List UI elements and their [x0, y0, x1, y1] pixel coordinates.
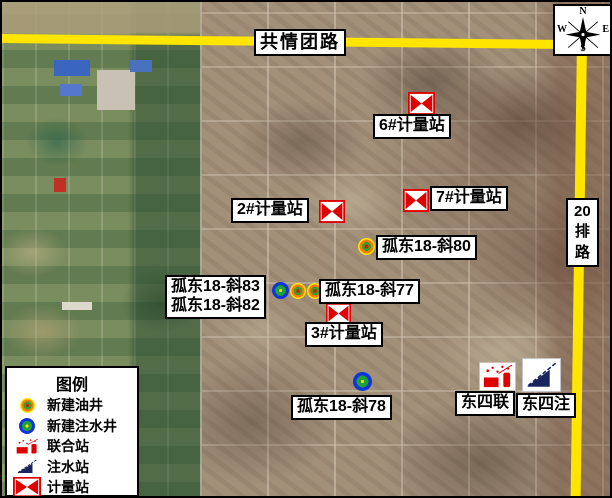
legend-icon-cell [7, 457, 47, 476]
legend-item-label: 计量站 [47, 477, 89, 497]
metering-station-2-icon [319, 200, 345, 223]
injection-well-icon [353, 372, 372, 391]
label-injection-well-gudong18-x78-text: 孤东18-斜78 [297, 398, 386, 417]
road-label-20pai-text: 排 [574, 222, 591, 242]
road-label-gongqingtuan-text: 共情团路 [260, 32, 340, 53]
injection-station-dongsizhu-icon [522, 358, 561, 392]
injection-well-icon [272, 282, 289, 299]
label-oil-well-gudong18-x80: 孤东18-斜80 [376, 235, 477, 260]
label-metering-station-6: 6#计量站 [373, 114, 451, 139]
legend-title: 图例 [7, 371, 137, 395]
metering-station-icon [326, 303, 351, 324]
farm-building-blue-1 [54, 60, 90, 76]
oil-well-cluster-a-icon [290, 283, 306, 299]
oil-well-gudong18-x80-icon [358, 238, 375, 255]
metering-station-7-icon [403, 189, 429, 212]
legend-icon-cell [7, 437, 47, 456]
legend-item-label: 新建注水井 [47, 416, 117, 436]
label-dongsizhu-text: 东四注 [522, 396, 570, 415]
label-metering-station-3-text: 3#计量站 [311, 325, 377, 344]
farm-building-blue-3 [130, 60, 152, 72]
label-oil-well-gudong18-x77: 孤东18-斜77 [319, 279, 420, 304]
legend-icon-cell [7, 477, 47, 497]
label-oil-well-gudong18-x77-text: 孤东18-斜77 [325, 282, 414, 301]
farm-building-gray [97, 70, 135, 110]
road-label-20pai-text: 路 [574, 243, 591, 263]
label-wells-gudong18-x83-x82-text: 孤东18-斜83 [171, 278, 260, 297]
farm-building-blue-2 [60, 84, 82, 96]
road-label-20pai-text: 20 [574, 202, 591, 222]
compass-east-label: E [602, 24, 609, 35]
metering-station-icon [403, 189, 429, 212]
legend-icon-cell [7, 398, 47, 413]
farm-building-white [62, 302, 92, 310]
metering-station-icon [13, 477, 41, 497]
injection-station-icon [14, 457, 40, 476]
satellite-map: 共情团路6#计量站2#计量站7#计量站孤东18-斜80孤东18-斜83孤东18-… [0, 0, 612, 498]
label-metering-station-7-text: 7#计量站 [436, 189, 502, 208]
injection-well-cluster-icon [272, 282, 289, 299]
union-station-dongsilian-icon [479, 362, 516, 391]
road-label-20pai: 20排路 [566, 198, 599, 267]
label-metering-station-2-text: 2#计量站 [237, 201, 303, 220]
oil-well-icon [358, 238, 375, 255]
legend-icon-cell [7, 418, 47, 434]
oil-well-icon [290, 283, 306, 299]
injection-station-icon [522, 358, 561, 392]
compass-south-label: S [580, 43, 586, 54]
label-metering-station-7: 7#计量站 [430, 186, 508, 211]
legend-item-oil-well: 新建油井 [7, 395, 137, 416]
label-dongsilian-text: 东四联 [461, 394, 509, 413]
label-wells-gudong18-x83-x82: 孤东18-斜83孤东18-斜82 [165, 275, 266, 319]
union-station-icon [13, 437, 41, 456]
legend-item-union-station: 联合站 [7, 436, 137, 457]
compass-north-label: N [579, 6, 586, 17]
compass-rose: N S W E [553, 4, 612, 56]
label-dongsilian: 东四联 [455, 391, 515, 416]
legend-item-metering-station: 计量站 [7, 477, 137, 498]
road-label-gongqingtuan: 共情团路 [254, 29, 346, 56]
metering-station-icon [319, 200, 345, 223]
legend-item-label: 新建油井 [47, 395, 103, 415]
compass-west-label: W [557, 24, 567, 35]
label-oil-well-gudong18-x80-text: 孤东18-斜80 [382, 238, 471, 257]
metering-station-icon [408, 92, 435, 115]
injection-well-gudong18-x78-icon [353, 372, 372, 391]
label-metering-station-6-text: 6#计量站 [379, 117, 445, 136]
legend-item-label: 联合站 [47, 436, 89, 456]
oil-well-icon [20, 398, 35, 413]
union-station-icon [479, 362, 516, 391]
label-metering-station-2: 2#计量站 [231, 198, 309, 223]
legend-item-injection-well: 新建注水井 [7, 416, 137, 437]
farm-building-red-1 [54, 178, 66, 192]
label-injection-well-gudong18-x78: 孤东18-斜78 [291, 395, 392, 420]
metering-station-3-icon [326, 303, 351, 324]
label-metering-station-3: 3#计量站 [305, 322, 383, 347]
legend: 图例 新建油井新建注水井联合站注水站计量站 [5, 366, 139, 497]
legend-item-injection-station: 注水站 [7, 457, 137, 478]
label-dongsizhu: 东四注 [516, 393, 576, 418]
metering-station-6-icon [408, 92, 435, 115]
legend-item-label: 注水站 [47, 457, 89, 477]
label-wells-gudong18-x83-x82-text: 孤东18-斜82 [171, 297, 260, 316]
injection-well-icon [19, 418, 35, 434]
